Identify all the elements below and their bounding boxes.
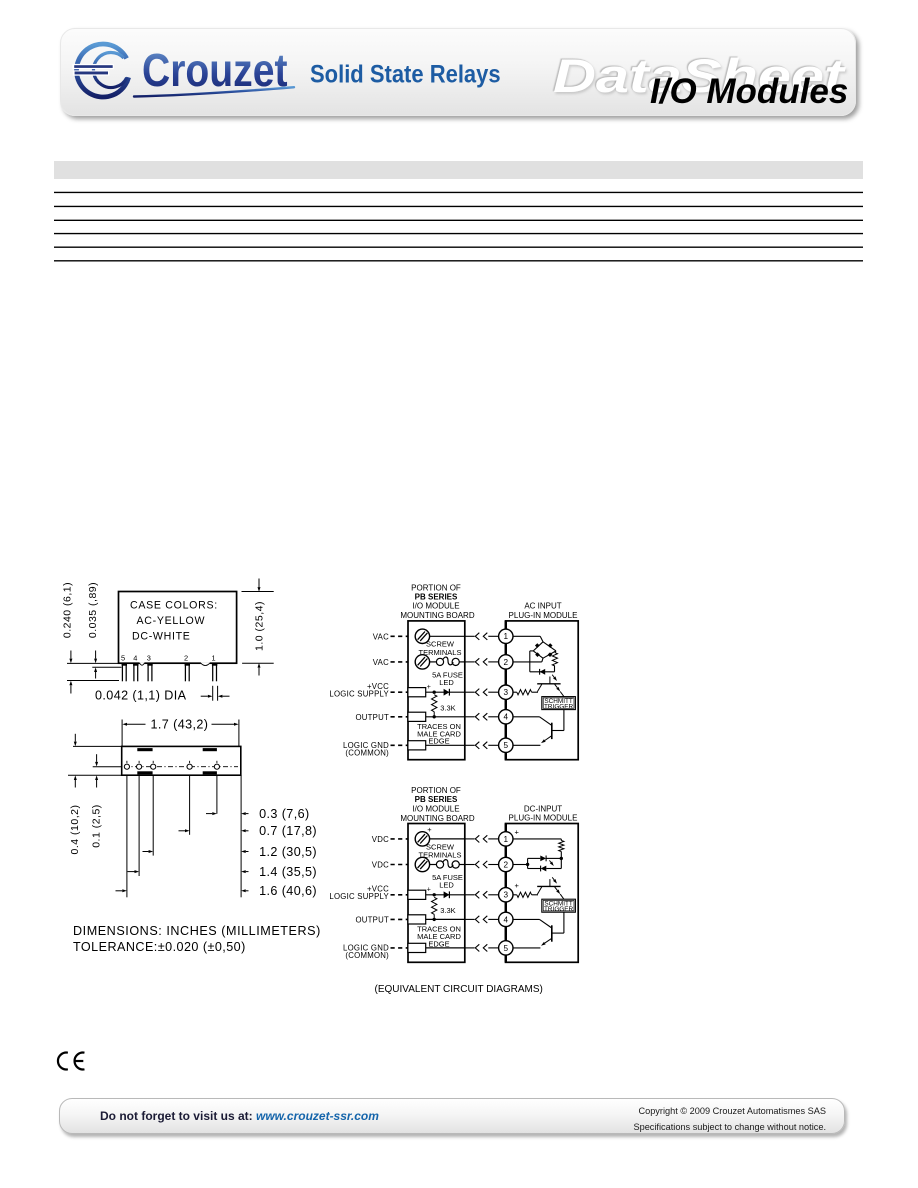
svg-text:1.0 (25,4): 1.0 (25,4) — [254, 601, 266, 651]
svg-text:AC-YELLOW: AC-YELLOW — [137, 615, 206, 627]
svg-text:(COMMON): (COMMON) — [345, 749, 389, 758]
svg-text:+: + — [427, 887, 431, 894]
svg-text:VDC: VDC — [372, 861, 389, 870]
svg-text:TERMINALS: TERMINALS — [419, 851, 462, 860]
svg-text:(COMMON): (COMMON) — [345, 951, 389, 960]
svg-text:2: 2 — [184, 654, 188, 663]
svg-text:VDC: VDC — [372, 835, 389, 844]
svg-text:+: + — [427, 684, 431, 691]
svg-text:PORTION OF: PORTION OF — [411, 786, 461, 795]
svg-text:4: 4 — [133, 654, 137, 663]
svg-text:LED: LED — [439, 678, 454, 687]
svg-text:1: 1 — [504, 835, 509, 844]
svg-text:1.6 (40,6): 1.6 (40,6) — [259, 884, 317, 898]
svg-text:PLUG-IN MODULE: PLUG-IN MODULE — [509, 611, 578, 620]
svg-text:EDGE: EDGE — [428, 939, 449, 948]
svg-text:VAC: VAC — [373, 658, 389, 667]
svg-text:(EQUIVALENT CIRCUIT DIAGRAMS): (EQUIVALENT CIRCUIT DIAGRAMS) — [375, 984, 543, 995]
svg-text:5: 5 — [121, 654, 125, 663]
svg-text:DIMENSIONS: INCHES (MILLIMETER: DIMENSIONS: INCHES (MILLIMETERS) — [73, 924, 321, 938]
svg-text:MOUNTING BOARD: MOUNTING BOARD — [400, 814, 474, 823]
svg-text:0.042 (1,1) DIA: 0.042 (1,1) DIA — [95, 689, 187, 703]
svg-text:MOUNTING BOARD: MOUNTING BOARD — [400, 611, 474, 620]
svg-text:LOGIC SUPPLY: LOGIC SUPPLY — [329, 892, 389, 901]
svg-text:EDGE: EDGE — [428, 737, 449, 746]
svg-text:3: 3 — [504, 891, 509, 900]
svg-text:LOGIC SUPPLY: LOGIC SUPPLY — [329, 690, 389, 699]
svg-text:PLUG-IN MODULE: PLUG-IN MODULE — [509, 814, 578, 823]
svg-text:AC INPUT: AC INPUT — [524, 602, 561, 611]
svg-text:PB SERIES: PB SERIES — [415, 795, 458, 804]
svg-text:4: 4 — [504, 713, 509, 722]
svg-text:+: + — [515, 828, 520, 837]
svg-text:VAC: VAC — [373, 632, 389, 641]
svg-text:1.4 (35,5): 1.4 (35,5) — [259, 865, 317, 879]
svg-text:3.3K: 3.3K — [440, 704, 455, 713]
svg-text:1: 1 — [504, 632, 509, 641]
svg-text:I/O MODULE: I/O MODULE — [412, 804, 459, 813]
svg-text:DC-WHITE: DC-WHITE — [132, 631, 191, 643]
svg-text:0.035 (,89): 0.035 (,89) — [87, 582, 99, 638]
svg-text:5: 5 — [504, 741, 509, 750]
svg-text:LED: LED — [439, 881, 454, 890]
svg-text:1.7 (43,2): 1.7 (43,2) — [151, 718, 209, 732]
svg-text:+: + — [515, 881, 520, 890]
svg-text:1: 1 — [211, 654, 215, 663]
svg-text:4: 4 — [504, 915, 509, 924]
svg-text:I/O MODULE: I/O MODULE — [412, 602, 459, 611]
svg-text:CASE COLORS:: CASE COLORS: — [130, 600, 218, 612]
svg-text:0.240 (6,1): 0.240 (6,1) — [61, 582, 73, 638]
svg-text:TRIGGER: TRIGGER — [544, 906, 573, 913]
svg-text:0.4 (10,2): 0.4 (10,2) — [69, 805, 81, 855]
svg-text:TERMINALS: TERMINALS — [419, 648, 462, 657]
svg-text:PORTION OF: PORTION OF — [411, 583, 461, 592]
svg-text:0.7 (17,8): 0.7 (17,8) — [259, 824, 317, 838]
svg-text:2: 2 — [504, 658, 509, 667]
svg-text:DC-INPUT: DC-INPUT — [524, 804, 562, 813]
svg-text:OUTPUT: OUTPUT — [355, 916, 389, 925]
svg-text:0.3 (7,6): 0.3 (7,6) — [259, 807, 310, 821]
svg-text:3: 3 — [504, 688, 509, 697]
svg-text:PB SERIES: PB SERIES — [415, 593, 458, 602]
svg-text:3.3K: 3.3K — [440, 906, 455, 915]
svg-text:TRIGGER: TRIGGER — [544, 703, 573, 710]
svg-text:2: 2 — [504, 860, 509, 869]
svg-text:+: + — [427, 825, 432, 834]
svg-text:3: 3 — [147, 654, 151, 663]
svg-text:5: 5 — [504, 944, 509, 953]
svg-text:1.2 (30,5): 1.2 (30,5) — [259, 845, 317, 859]
svg-text:0.1 (2,5): 0.1 (2,5) — [90, 804, 102, 848]
svg-text:OUTPUT: OUTPUT — [355, 713, 389, 722]
svg-text:TOLERANCE:±0.020 (±0,50): TOLERANCE:±0.020 (±0,50) — [73, 940, 246, 954]
